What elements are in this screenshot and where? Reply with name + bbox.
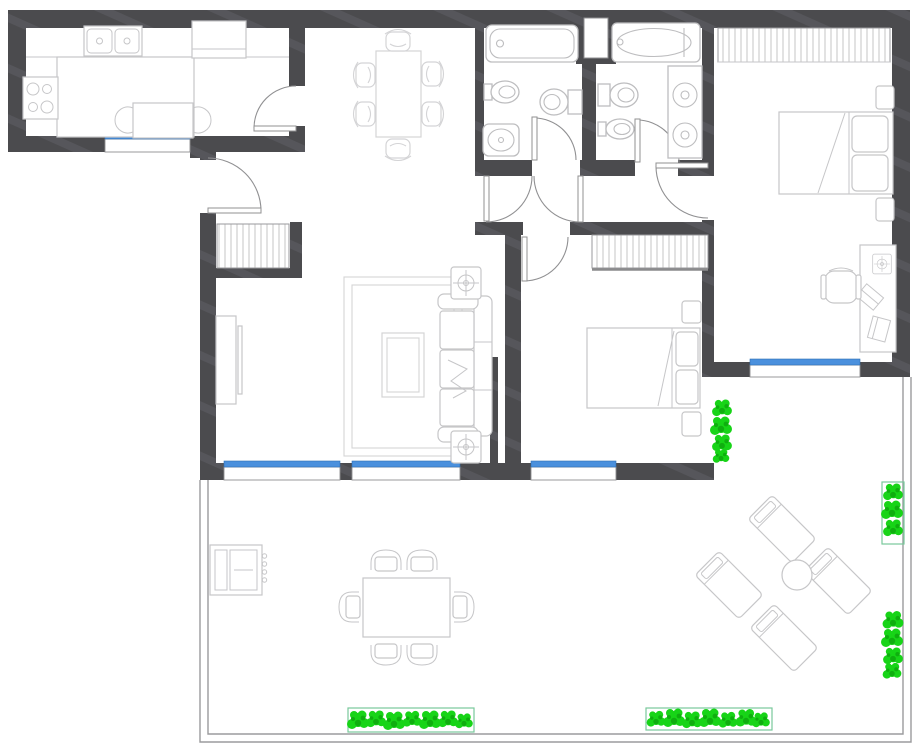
bathroom1-hall-door bbox=[484, 176, 532, 222]
shrubs-by-bedroom2-wall bbox=[710, 399, 732, 462]
wall-niche bbox=[584, 18, 608, 58]
cooktop bbox=[23, 77, 58, 119]
dining-table bbox=[376, 51, 421, 137]
outdoor-chair bbox=[407, 644, 437, 665]
bidet bbox=[598, 119, 634, 139]
nightstand bbox=[876, 198, 894, 221]
master-bedroom bbox=[718, 28, 896, 352]
wall-segment bbox=[8, 136, 106, 152]
living-room bbox=[216, 224, 492, 463]
tv-screen bbox=[238, 326, 242, 394]
kitchen bbox=[23, 21, 289, 138]
desk bbox=[856, 245, 896, 352]
pillow bbox=[676, 332, 698, 366]
lounge-area bbox=[695, 495, 872, 672]
sofa bbox=[438, 294, 492, 442]
pillow bbox=[852, 116, 888, 152]
double-bed bbox=[779, 112, 893, 194]
wall-segment bbox=[616, 463, 714, 480]
wall-segment bbox=[200, 463, 224, 480]
dining-chair bbox=[385, 139, 411, 161]
dining-chair bbox=[422, 61, 444, 87]
wall-segment bbox=[475, 222, 523, 235]
outdoor-chair bbox=[371, 644, 401, 665]
bedroom2-window bbox=[531, 461, 616, 480]
kitchen-sink bbox=[84, 26, 142, 56]
living-window-left bbox=[224, 461, 340, 480]
wall-segment bbox=[580, 160, 635, 176]
outdoor-chair bbox=[339, 592, 360, 622]
wall-segment bbox=[570, 222, 714, 235]
toilet bbox=[598, 83, 638, 107]
sun-lounger bbox=[750, 604, 818, 672]
bidet bbox=[484, 81, 519, 103]
outdoor-chair bbox=[407, 550, 437, 571]
wall-segment bbox=[8, 10, 910, 28]
pillow bbox=[676, 370, 698, 404]
wall-segment bbox=[289, 10, 305, 86]
double-bed bbox=[587, 328, 700, 408]
double-vanity bbox=[668, 66, 702, 158]
bbq-grill bbox=[210, 545, 267, 595]
bathtub bbox=[486, 25, 578, 62]
refrigerator bbox=[192, 21, 246, 58]
kitchen-door bbox=[254, 86, 296, 131]
bedroom-2 bbox=[587, 235, 708, 436]
master-bedroom-window bbox=[750, 359, 860, 377]
bathroom-2 bbox=[598, 23, 702, 158]
wall-segment bbox=[505, 223, 521, 463]
nightstand bbox=[876, 86, 894, 109]
wall-segment bbox=[860, 362, 910, 377]
planter-bottom-right bbox=[646, 708, 772, 730]
sun-lounger bbox=[748, 495, 816, 563]
sun-lounger bbox=[804, 547, 872, 615]
bedroom2-door bbox=[522, 237, 568, 281]
wall-segment bbox=[216, 268, 302, 278]
nightstand bbox=[682, 412, 701, 436]
dining-chair bbox=[354, 62, 376, 88]
side-table bbox=[451, 431, 481, 463]
dining-chair bbox=[354, 101, 376, 127]
outdoor-table bbox=[363, 578, 450, 637]
living-window-right bbox=[352, 461, 460, 480]
wall-segment bbox=[702, 362, 750, 377]
corridor-door bbox=[534, 176, 583, 222]
coffee-table bbox=[382, 333, 424, 397]
wardrobe bbox=[718, 28, 890, 62]
wardrobe bbox=[592, 235, 708, 268]
pillow bbox=[852, 155, 888, 191]
round-side-table bbox=[782, 560, 812, 590]
sun-lounger bbox=[695, 551, 763, 619]
washbasin bbox=[483, 124, 519, 156]
outdoor-chair bbox=[453, 592, 474, 622]
office-chair bbox=[821, 268, 861, 303]
planter-bottom-left bbox=[347, 708, 474, 732]
floor-plan-canvas bbox=[0, 0, 920, 752]
planter-right-upper bbox=[881, 482, 904, 544]
desk-lamp bbox=[873, 254, 892, 274]
nightstand bbox=[682, 301, 701, 323]
outdoor-chair bbox=[371, 550, 401, 571]
entry-closet bbox=[217, 224, 289, 268]
floor-plan-page bbox=[0, 0, 920, 752]
terrace-parapet bbox=[200, 377, 911, 742]
dining-area bbox=[354, 30, 444, 161]
wall-segment bbox=[340, 463, 352, 480]
side-table bbox=[451, 267, 481, 299]
bathtub bbox=[612, 23, 700, 62]
terrace bbox=[210, 399, 904, 732]
wall-segment bbox=[475, 160, 532, 176]
wall-segment bbox=[200, 213, 216, 465]
dining-chair bbox=[422, 101, 444, 127]
outdoor-dining-set bbox=[339, 550, 474, 665]
toilet bbox=[540, 89, 582, 115]
tv-unit bbox=[216, 316, 242, 404]
bathroom1-door bbox=[532, 117, 576, 160]
dining-chair bbox=[385, 30, 411, 52]
shrubs-right-lower bbox=[881, 611, 903, 679]
wall-segment bbox=[460, 463, 531, 480]
entry-door bbox=[208, 158, 261, 213]
wall-segment bbox=[702, 10, 714, 162]
